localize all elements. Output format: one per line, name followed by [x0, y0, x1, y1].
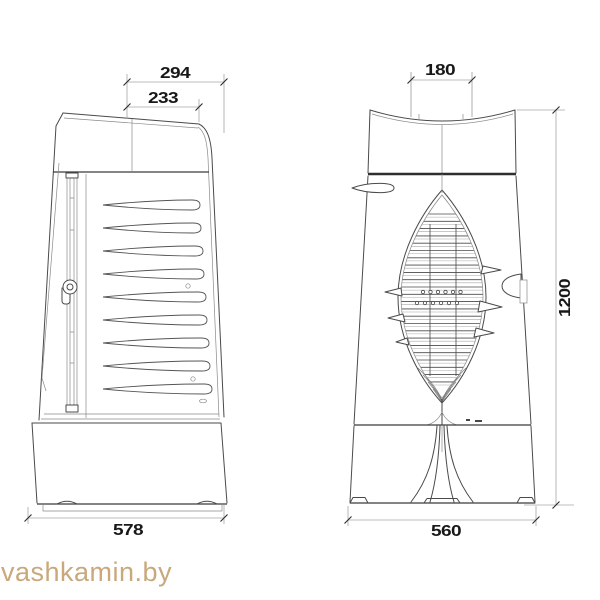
front-top-right-side — [515, 110, 516, 173]
flue-opening-ticks — [419, 114, 463, 119]
left-side-handle — [352, 183, 394, 192]
right-door-handle — [502, 274, 521, 298]
thorn — [478, 301, 502, 312]
leaf-outline-outer — [398, 190, 486, 403]
base-plinth — [43, 504, 222, 511]
base-right-edge — [221, 423, 227, 503]
right-handle-bar — [520, 280, 527, 303]
dim-label-180: 180 — [425, 62, 456, 79]
louver-slot — [103, 315, 207, 325]
side-top-inner-edge — [64, 118, 198, 128]
front-base-right-edge — [531, 426, 535, 502]
rivet-dot — [436, 290, 439, 293]
dim-label-578: 578 — [113, 522, 144, 539]
rivet-dot — [447, 301, 450, 304]
front-left-side — [354, 176, 368, 424]
dimension-lines — [25, 74, 575, 526]
louver-slot — [103, 200, 200, 210]
louver-slot — [103, 292, 206, 302]
rivet-dot — [423, 301, 426, 304]
thorn — [396, 338, 409, 345]
louver-slot — [103, 246, 203, 256]
base-left-edge — [32, 423, 37, 503]
watermark: vashkamin.by — [1, 557, 172, 588]
pedestal-curve — [430, 426, 440, 502]
thorn — [385, 288, 402, 296]
thorn — [481, 266, 501, 274]
dim-label-1200: 1200 — [557, 278, 574, 317]
louver-slot — [103, 338, 209, 348]
side-base — [32, 414, 227, 511]
rivet-dot — [439, 301, 442, 304]
rivet-dot — [459, 290, 462, 293]
hinge-top-cap — [66, 173, 78, 178]
rivet-dot — [429, 290, 432, 293]
rivet-dot — [431, 301, 434, 304]
technical-drawing-canvas: 294 233 180 1200 578 560 vashkamin.by — [0, 0, 600, 600]
leaf-window — [385, 174, 502, 425]
side-view — [32, 113, 227, 511]
louver-slot — [103, 269, 204, 279]
side-louvers — [103, 200, 212, 394]
front-base-foot — [424, 499, 460, 504]
door-hinge-column — [62, 173, 78, 412]
stove-two-view-drawing: 294 233 180 1200 578 560 — [0, 0, 600, 600]
vent-slot — [200, 399, 207, 403]
side-top-edge — [63, 113, 199, 124]
dim-label-294: 294 — [160, 65, 191, 82]
air-control-mark — [466, 419, 470, 421]
leaf-grill-slats — [399, 214, 485, 385]
hinge-bottom-cap — [66, 405, 78, 412]
dim-label-560: 560 — [431, 523, 462, 540]
thorn — [388, 314, 405, 322]
front-top-left-side — [368, 110, 370, 173]
front-base-foot — [350, 498, 368, 504]
screw-hole — [191, 377, 195, 381]
air-control-mark — [475, 420, 482, 422]
saddle-corner-ticks — [370, 110, 515, 114]
door-knob — [63, 280, 77, 294]
front-base-left-edge — [350, 426, 354, 502]
louver-slot — [103, 384, 212, 394]
front-view — [350, 72, 535, 503]
louver-slot — [103, 361, 210, 371]
front-base — [350, 426, 535, 503]
rivet-dot — [444, 290, 447, 293]
rivet-dot — [451, 290, 454, 293]
side-door-glass-edge — [42, 163, 59, 391]
rivet-dot — [455, 301, 458, 304]
front-base-foot — [517, 498, 535, 504]
dim-label-233: 233 — [148, 90, 179, 107]
rivet-dot — [415, 301, 418, 304]
rivet-dot — [421, 290, 424, 293]
pedestal-curve — [444, 426, 454, 502]
screw-hole — [186, 284, 190, 288]
thorn — [474, 328, 494, 337]
louver-slot — [103, 223, 201, 233]
